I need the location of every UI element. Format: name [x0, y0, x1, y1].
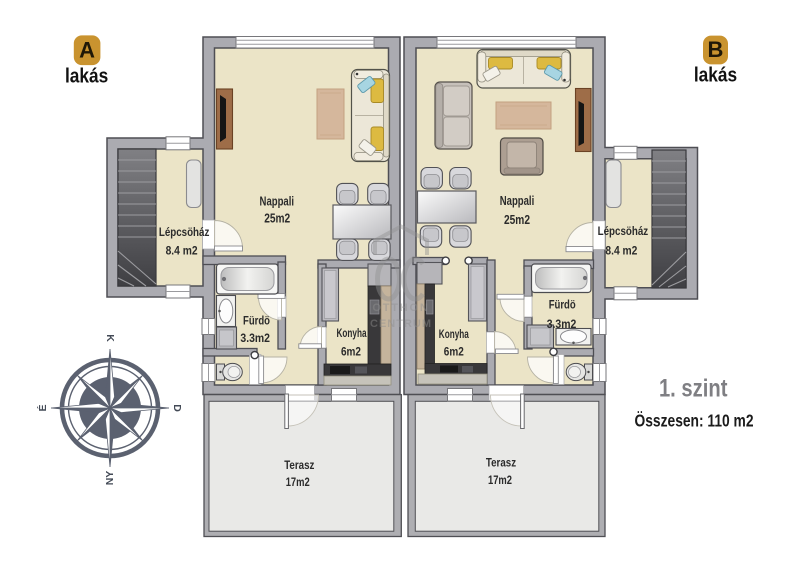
svg-text:B: B: [708, 37, 724, 62]
svg-text:Konyha: Konyha: [337, 326, 367, 340]
svg-text:3.3m2: 3.3m2: [240, 331, 270, 345]
svg-text:17m2: 17m2: [488, 473, 512, 487]
svg-text:NY: NY: [104, 471, 116, 486]
svg-text:Lépcsöház: Lépcsöház: [159, 225, 210, 239]
svg-text:8.4 m2: 8.4 m2: [166, 243, 198, 257]
svg-text:25m2: 25m2: [264, 212, 290, 226]
svg-text:8.4 m2: 8.4 m2: [605, 243, 637, 257]
svg-text:Nappali: Nappali: [260, 194, 295, 208]
svg-text:Összesen: 110 m2: Összesen: 110 m2: [635, 411, 754, 431]
svg-text:A: A: [79, 38, 95, 63]
svg-text:25m2: 25m2: [504, 213, 530, 227]
svg-text:Fürdö: Fürdö: [549, 298, 576, 312]
svg-text:Nappali: Nappali: [500, 194, 535, 208]
svg-text:6m2: 6m2: [444, 345, 464, 359]
svg-text:6m2: 6m2: [341, 345, 361, 359]
svg-text:K: K: [104, 334, 116, 342]
svg-text:D: D: [171, 404, 183, 412]
svg-text:É: É: [36, 404, 49, 411]
svg-text:Terasz: Terasz: [284, 458, 314, 472]
svg-text:3.3m2: 3.3m2: [547, 317, 577, 331]
svg-text:Konyha: Konyha: [439, 327, 469, 341]
svg-text:CENTRUM: CENTRUM: [370, 318, 432, 330]
svg-text:Terasz: Terasz: [486, 456, 516, 470]
svg-text:Lépcsöház: Lépcsöház: [598, 224, 649, 238]
svg-text:1. szint: 1. szint: [659, 375, 728, 403]
svg-text:lakás: lakás: [694, 65, 737, 87]
svg-text:17m2: 17m2: [286, 475, 310, 489]
svg-text:lakás: lakás: [65, 66, 108, 88]
svg-text:Fürdö: Fürdö: [243, 314, 270, 328]
svg-text:OTTHON: OTTHON: [372, 302, 429, 314]
